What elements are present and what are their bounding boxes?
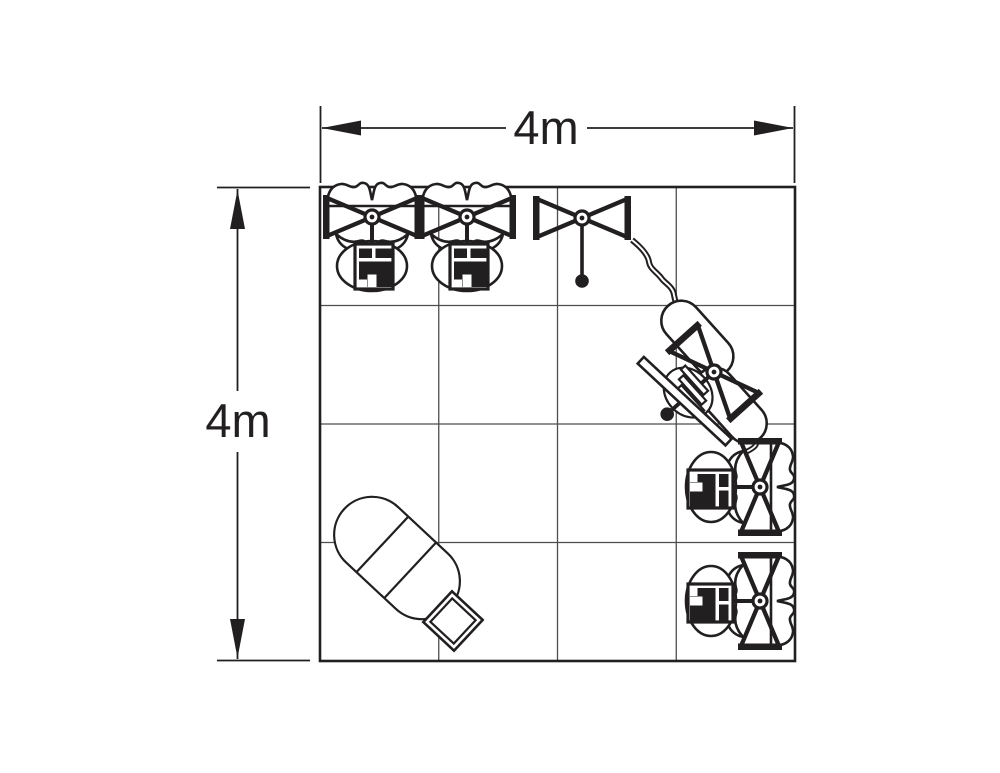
diagonal-workstation [609,292,790,478]
arrow-left-icon [322,121,361,136]
workstation-top-1 [323,183,421,291]
workstation-right-1 [686,438,794,536]
dimension-top: 4m [321,101,795,183]
depth-dimension-label: 4m [205,394,270,447]
workstation-right-2 [686,552,794,650]
fabric-banner-top [632,240,678,309]
width-dimension-label: 4m [513,101,578,154]
workstation-top-2 [418,183,516,291]
booth-floor-plan: 4m 4m [0,0,1000,773]
open-truss-display [533,196,631,288]
arrow-right-icon [754,121,793,136]
arrow-up-icon [230,190,245,229]
arrow-down-icon [230,619,245,658]
dimension-left: 4m [205,188,310,661]
floor-plan-drawing: 4m 4m [0,0,1000,773]
